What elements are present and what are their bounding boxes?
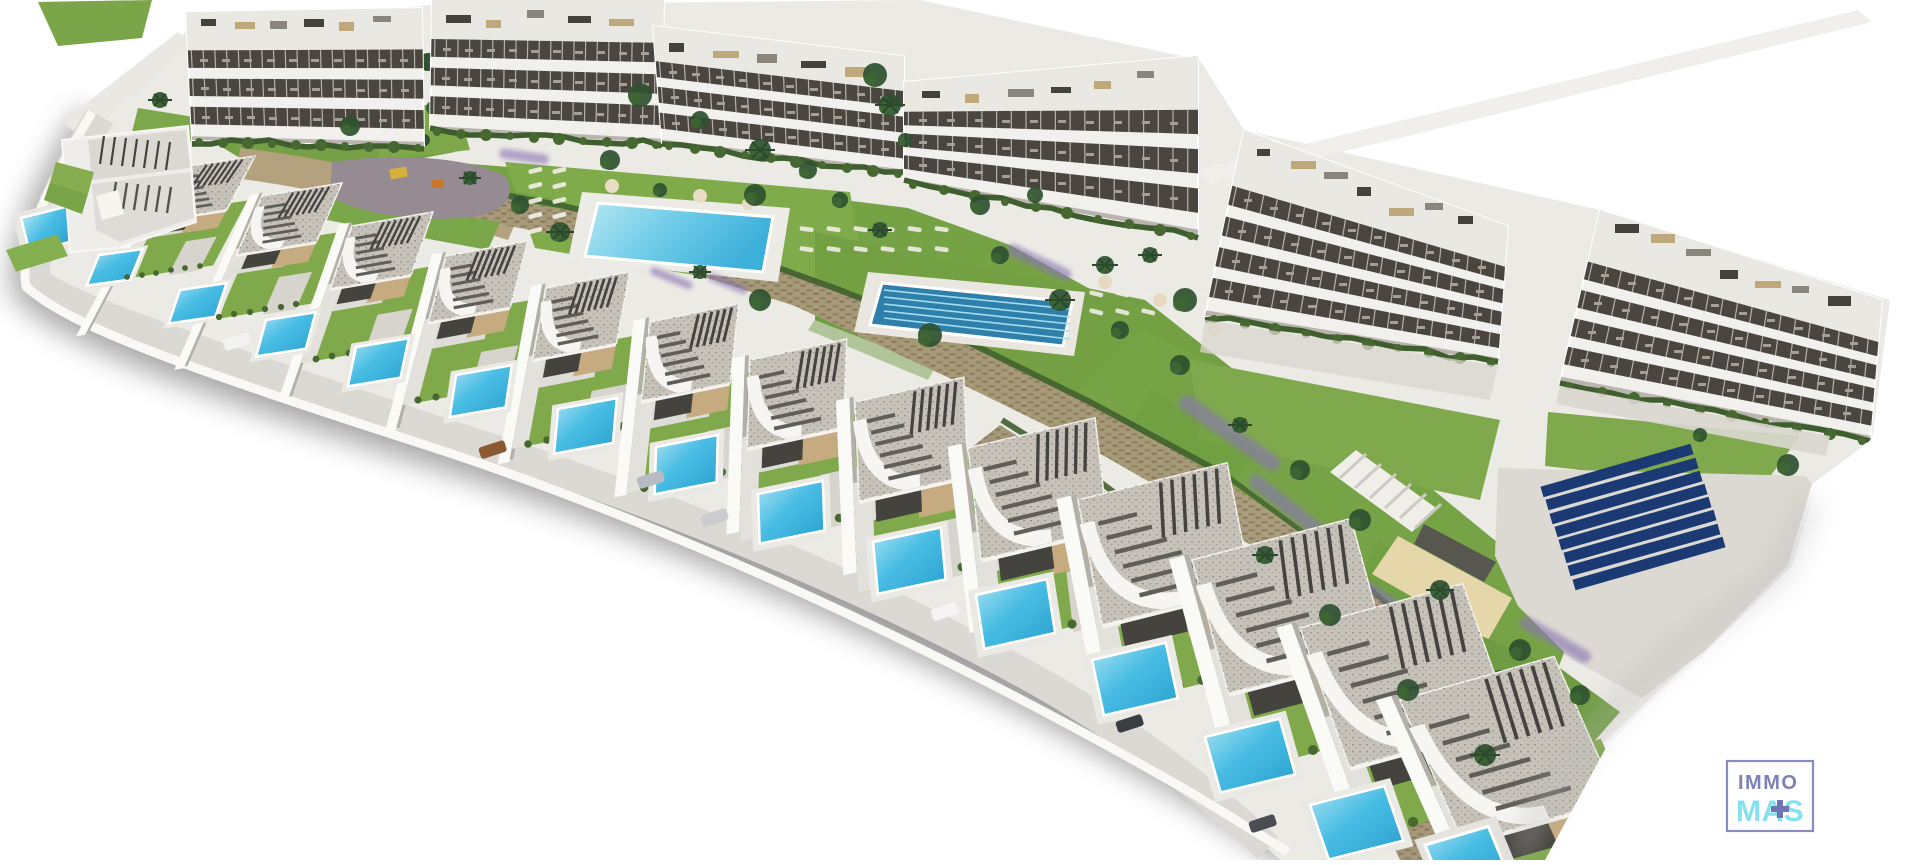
- svg-text:IMMO: IMMO: [1738, 772, 1798, 794]
- svg-text:MAS: MAS: [1736, 795, 1804, 828]
